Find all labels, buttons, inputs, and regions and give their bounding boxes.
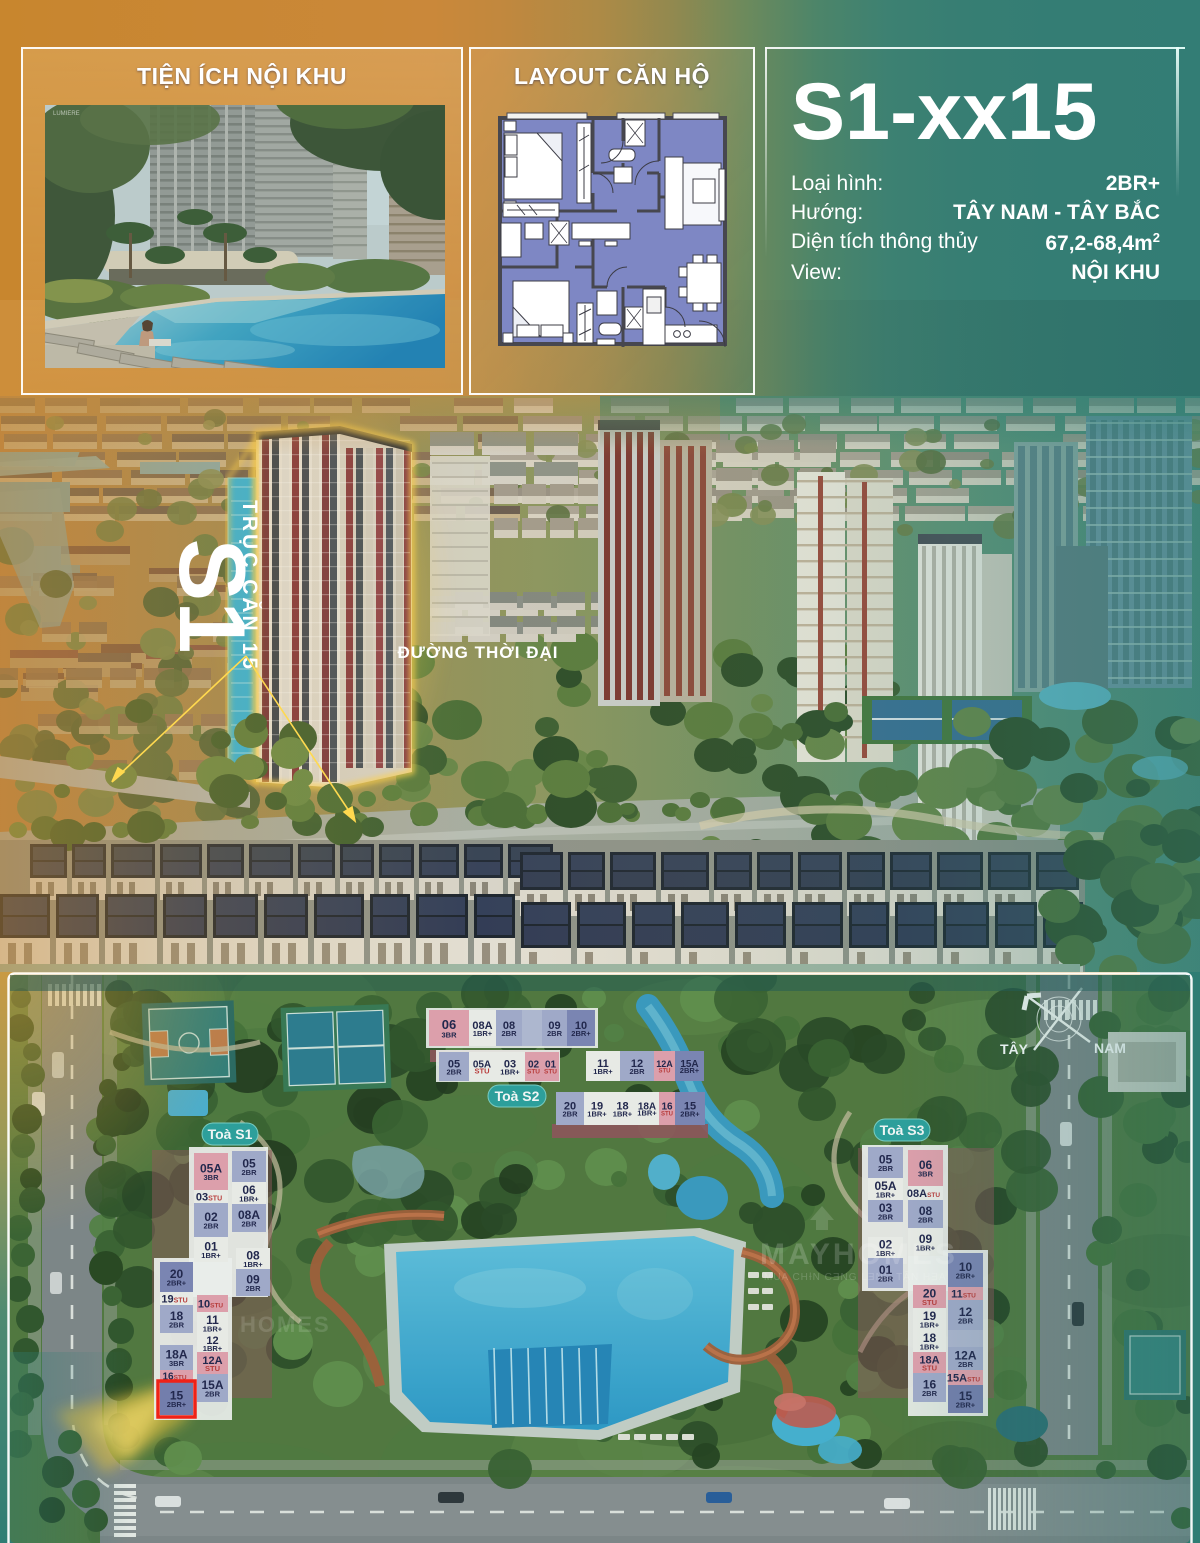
svg-text:LUMIÈRE: LUMIÈRE: [53, 110, 80, 117]
svg-text:HOMES: HOMES: [240, 1312, 331, 1337]
svg-text:ĐƯỜNG THỜI ĐẠI: ĐƯỜNG THỜI ĐẠI: [398, 643, 559, 662]
svg-text:S1: S1: [160, 539, 265, 654]
